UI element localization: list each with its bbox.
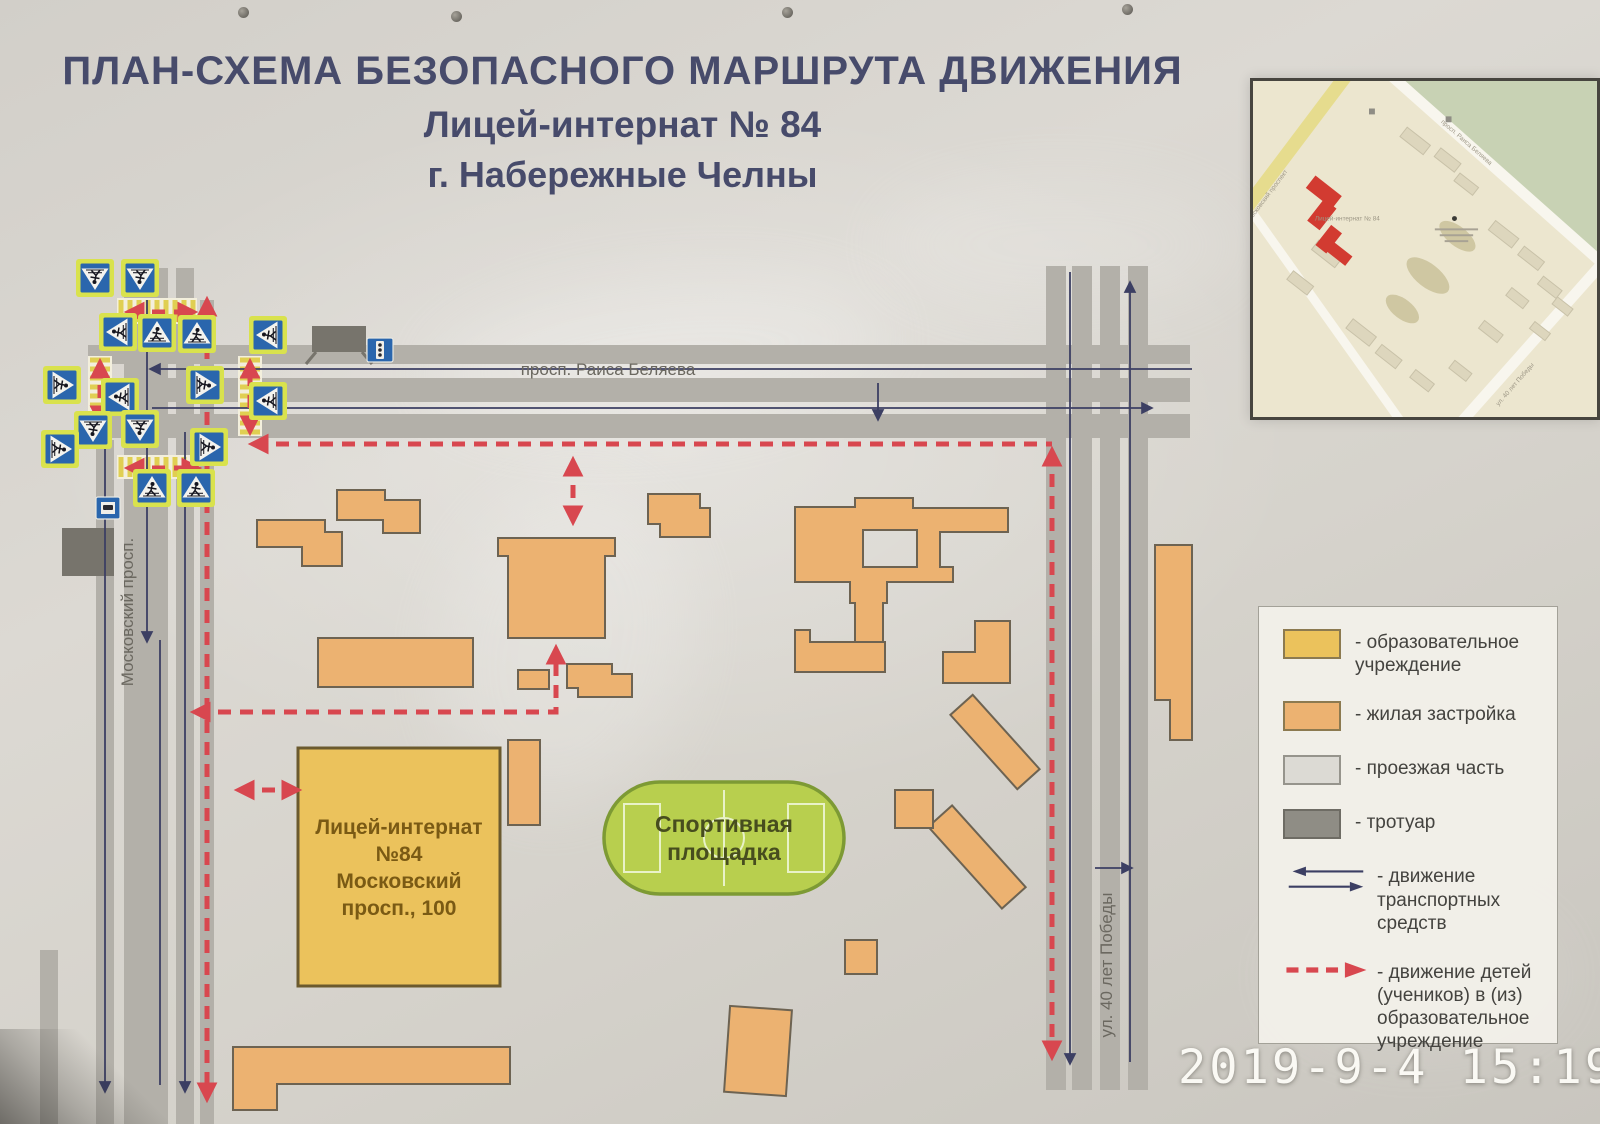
inset-building	[1375, 344, 1402, 368]
inset-building	[1479, 320, 1504, 342]
road	[1128, 266, 1148, 1090]
traffic-light-sign	[367, 338, 393, 362]
inset-map-icon	[1369, 109, 1375, 115]
residential-building	[1155, 545, 1192, 740]
bus-stop-sign	[96, 497, 120, 519]
road	[40, 950, 58, 1124]
residential-building	[928, 805, 1025, 908]
roadway-swatch	[1283, 755, 1341, 785]
pedestrian-crossing-sign	[249, 316, 287, 354]
inset-micro-text	[1435, 228, 1478, 230]
camera-timestamp: 2019-9-4 15:19	[1178, 1040, 1600, 1095]
pedestrian-crossing-sign	[76, 259, 114, 297]
residential-building	[724, 1006, 792, 1096]
inset-street-label: Лицей-интернат № 84	[1315, 215, 1380, 223]
pedestrian-crossing-sign	[99, 313, 137, 351]
children-route-arrow-icon	[1283, 959, 1369, 986]
pedestrian-crossing-sign	[190, 428, 228, 466]
residential-building	[518, 670, 549, 689]
road	[1046, 266, 1066, 1090]
inset-micro-text	[1440, 234, 1473, 236]
residential-building	[895, 790, 933, 828]
pedestrian-crossing-sign	[121, 410, 159, 448]
inset-micro-text	[1445, 240, 1469, 242]
residential-building	[257, 520, 342, 566]
pedestrian-crossing-sign	[177, 469, 215, 507]
residential-building	[498, 538, 615, 638]
pedestrian-crossing-sign	[138, 314, 176, 352]
pedestrian-crossing-sign	[121, 259, 159, 297]
pedestrian-crossing-sign	[186, 366, 224, 404]
sports-field: Спортивнаяплощадка	[604, 782, 844, 894]
screw	[782, 7, 793, 18]
legend-item-roadway: - проезжая часть	[1283, 755, 1543, 785]
legend-item-sidewalk: - тротуар	[1283, 809, 1543, 839]
residential-swatch	[1283, 701, 1341, 731]
street-labels-layer: просп. Раиса БеляеваМосковский просп.ул.…	[118, 360, 1116, 1037]
inset-building	[1537, 276, 1562, 298]
inset-poi-dot	[1452, 216, 1457, 221]
residential-building	[508, 740, 540, 825]
residential-building	[648, 494, 710, 537]
inset-building	[1346, 319, 1376, 346]
pedestrian-crossing-sign	[41, 430, 79, 468]
legend-item-education: - образовательное учреждение	[1283, 629, 1543, 677]
school-building: Лицей-интернат№84Московскийпросп., 100	[298, 748, 500, 986]
sidewalk-swatch	[1283, 809, 1341, 839]
pedestrian-crossing-sign	[178, 315, 216, 353]
legend-label: - образовательное учреждение	[1355, 629, 1543, 677]
pedestrian-crossing-sign	[74, 411, 112, 449]
inset-building	[1410, 370, 1435, 392]
inset-building	[1434, 148, 1461, 172]
street-name-label: просп. Раиса Беляева	[521, 360, 696, 379]
safety-route-poster: ПЛАН-СХЕМА БЕЗОПАСНОГО МАРШРУТА ДВИЖЕНИЯ…	[0, 0, 1600, 1124]
legend-item-residential: - жилая застройка	[1283, 701, 1543, 731]
bus-shelter	[312, 326, 366, 352]
inset-building	[1454, 173, 1479, 195]
legend-label: - проезжая часть	[1355, 755, 1504, 780]
residential-building	[318, 638, 473, 687]
legend-label: - движение транспортных средств	[1377, 863, 1543, 935]
inset-city-map: Московский проспектпросп. Раиса Беляевау…	[1250, 78, 1600, 420]
screw	[1122, 4, 1133, 15]
inset-building	[1449, 360, 1472, 381]
inset-building	[1488, 221, 1518, 248]
screw	[451, 11, 462, 22]
screw	[238, 7, 249, 18]
map-legend: - образовательное учреждение - жилая зас…	[1258, 606, 1558, 1044]
legend-label: - жилая застройка	[1355, 701, 1516, 726]
inset-building	[1518, 246, 1545, 270]
legend-label: - тротуар	[1355, 809, 1435, 834]
vehicle-traffic-arrows-icon	[1283, 863, 1369, 902]
inset-yard	[1381, 289, 1424, 329]
residential-building	[950, 695, 1039, 789]
inset-building	[1400, 127, 1430, 154]
residential-building	[845, 940, 877, 974]
residential-building	[337, 490, 420, 533]
pedestrian-crossing-sign	[249, 382, 287, 420]
legend-item-vehicle-traffic: - движение транспортных средств	[1283, 863, 1543, 935]
street-name-label: ул. 40 лет Победы	[1097, 893, 1116, 1038]
inset-road	[1462, 263, 1597, 417]
bus-shelter	[62, 528, 114, 576]
pedestrian-crossing-sign	[43, 366, 81, 404]
education-swatch	[1283, 629, 1341, 659]
street-name-label: Московский просп.	[118, 538, 137, 686]
inset-building	[1506, 288, 1529, 309]
residential-building	[943, 621, 1010, 683]
residential-building	[233, 1047, 510, 1110]
pedestrian-crossing-sign	[133, 469, 171, 507]
inset-yard	[1401, 251, 1456, 301]
residential-building	[567, 664, 632, 697]
road	[1072, 266, 1092, 1090]
